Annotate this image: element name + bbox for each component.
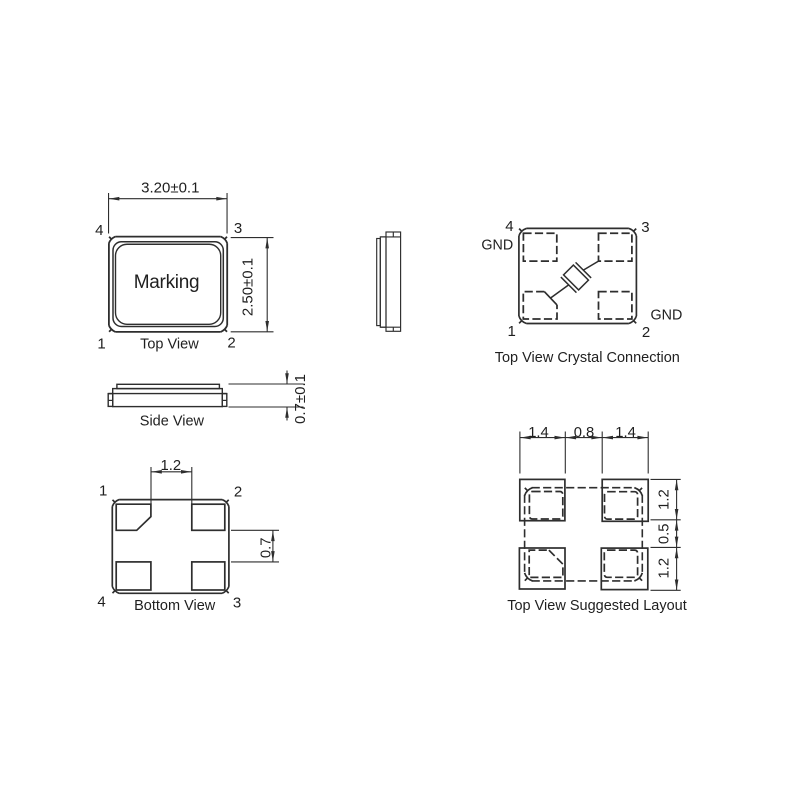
svg-text:1: 1 xyxy=(508,323,516,340)
svg-text:Top View Crystal Connection: Top View Crystal Connection xyxy=(495,350,680,366)
svg-text:2: 2 xyxy=(227,335,235,352)
svg-text:Marking: Marking xyxy=(134,272,199,293)
svg-text:3: 3 xyxy=(641,219,649,236)
svg-text:GND: GND xyxy=(651,307,683,323)
svg-text:4: 4 xyxy=(95,222,103,239)
svg-text:1.4: 1.4 xyxy=(615,425,636,441)
svg-text:3: 3 xyxy=(233,594,241,611)
svg-text:2.50±0.1: 2.50±0.1 xyxy=(239,258,256,316)
svg-text:0.7: 0.7 xyxy=(258,538,274,559)
svg-text:1: 1 xyxy=(99,482,107,499)
svg-text:1.2: 1.2 xyxy=(161,458,182,474)
svg-text:3: 3 xyxy=(234,220,242,237)
svg-text:1.2: 1.2 xyxy=(657,558,673,579)
svg-text:0.7±0.1: 0.7±0.1 xyxy=(292,374,309,424)
svg-text:Side View: Side View xyxy=(140,414,205,430)
svg-text:1.2: 1.2 xyxy=(657,489,673,510)
svg-text:0.8: 0.8 xyxy=(574,425,595,441)
svg-text:1: 1 xyxy=(97,335,105,352)
svg-text:Top View Suggested Layout: Top View Suggested Layout xyxy=(507,598,687,614)
svg-text:2: 2 xyxy=(234,483,242,500)
svg-text:Top View: Top View xyxy=(140,336,199,352)
svg-text:GND: GND xyxy=(481,238,513,254)
svg-text:3.20±0.1: 3.20±0.1 xyxy=(141,180,199,197)
svg-text:1.4: 1.4 xyxy=(528,425,549,441)
svg-text:4: 4 xyxy=(97,593,105,610)
svg-text:4: 4 xyxy=(505,218,513,235)
svg-text:0.5: 0.5 xyxy=(657,524,673,545)
svg-text:Bottom View: Bottom View xyxy=(134,598,216,614)
svg-text:2: 2 xyxy=(642,324,650,341)
